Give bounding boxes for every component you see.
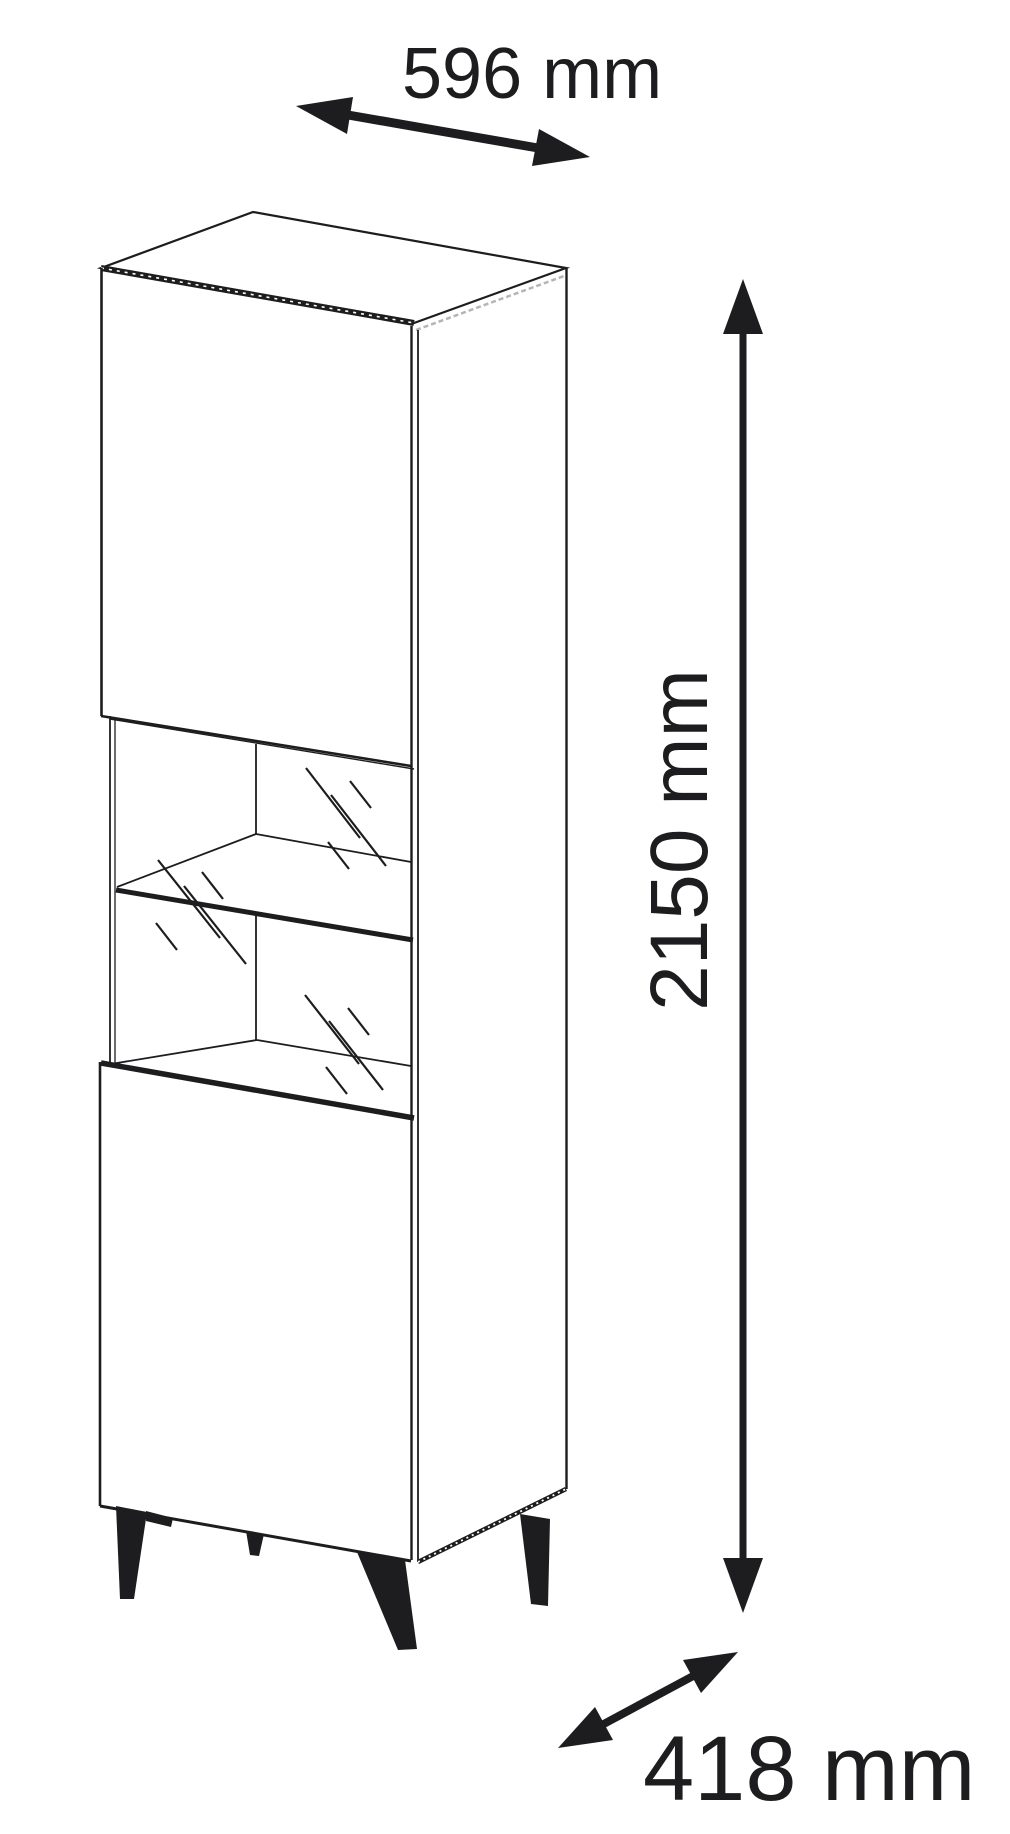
height-dimension: 2150 mm: [634, 279, 763, 1613]
height-double-arrow-icon: [723, 279, 763, 1613]
cabinet-drawing: [100, 212, 567, 1650]
glass-shelf-front-edge: [116, 890, 413, 940]
shelf-left-edge: [117, 834, 256, 887]
interior-floor-back-edge: [257, 1040, 411, 1066]
width-label: 596 mm: [402, 34, 662, 114]
leg-back-right: [520, 1514, 550, 1606]
glass-hatch-lower-pane: [305, 995, 383, 1094]
depth-dimension: 418 mm: [558, 1652, 975, 1820]
glass-hatch-upper-pane: [306, 768, 386, 869]
leg-front-left: [116, 1506, 147, 1599]
interior-floor-left-edge: [111, 1040, 257, 1064]
showcase-ceiling-edge: [110, 719, 414, 769]
leg-front-left-bracket: [146, 1511, 173, 1527]
cabinet-dimension-diagram: 596 mm 2150 mm 418 mm: [0, 0, 1010, 1834]
leg-front-right: [357, 1552, 417, 1650]
width-dimension: 596 mm: [296, 34, 662, 166]
leg-back-left: [246, 1531, 264, 1556]
dimension-diagram-page: 596 mm 2150 mm 418 mm: [0, 0, 1010, 1834]
height-label: 2150 mm: [634, 669, 725, 1011]
depth-label: 418 mm: [643, 1718, 975, 1820]
